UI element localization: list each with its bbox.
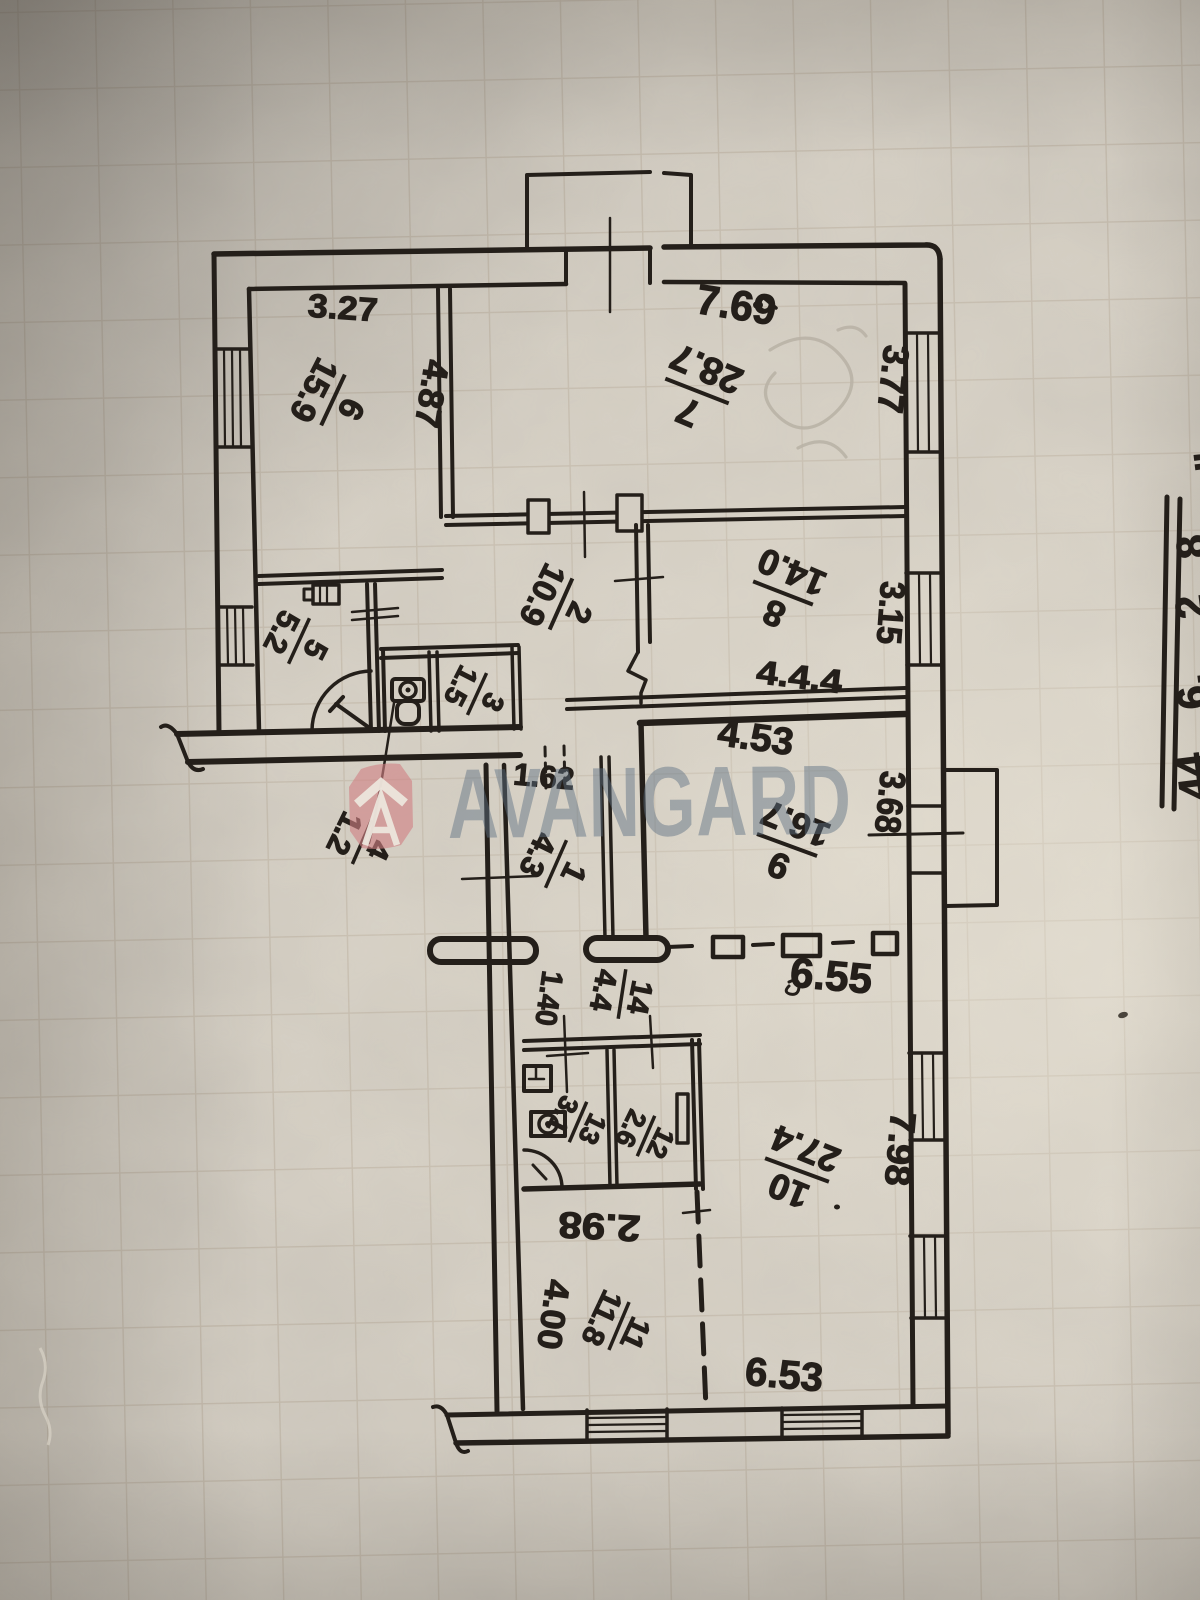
svg-text:44: 44: [1166, 750, 1200, 803]
svg-text:14: 14: [620, 978, 659, 1017]
svg-text:6.53: 6.53: [743, 1350, 825, 1401]
svg-text:AVANGARD: AVANGARD: [447, 744, 852, 859]
svg-text:3.77: 3.77: [869, 343, 917, 415]
svg-text:2.98: 2.98: [557, 1204, 641, 1249]
svg-text:6.55: 6.55: [788, 949, 874, 1003]
svg-text:3.15: 3.15: [869, 580, 912, 646]
svg-text:3.68: 3.68: [867, 769, 914, 835]
svg-text:6,: 6,: [1166, 672, 1200, 712]
svg-text:7.98: 7.98: [877, 1110, 924, 1187]
svg-text:3.27: 3.27: [307, 287, 379, 329]
